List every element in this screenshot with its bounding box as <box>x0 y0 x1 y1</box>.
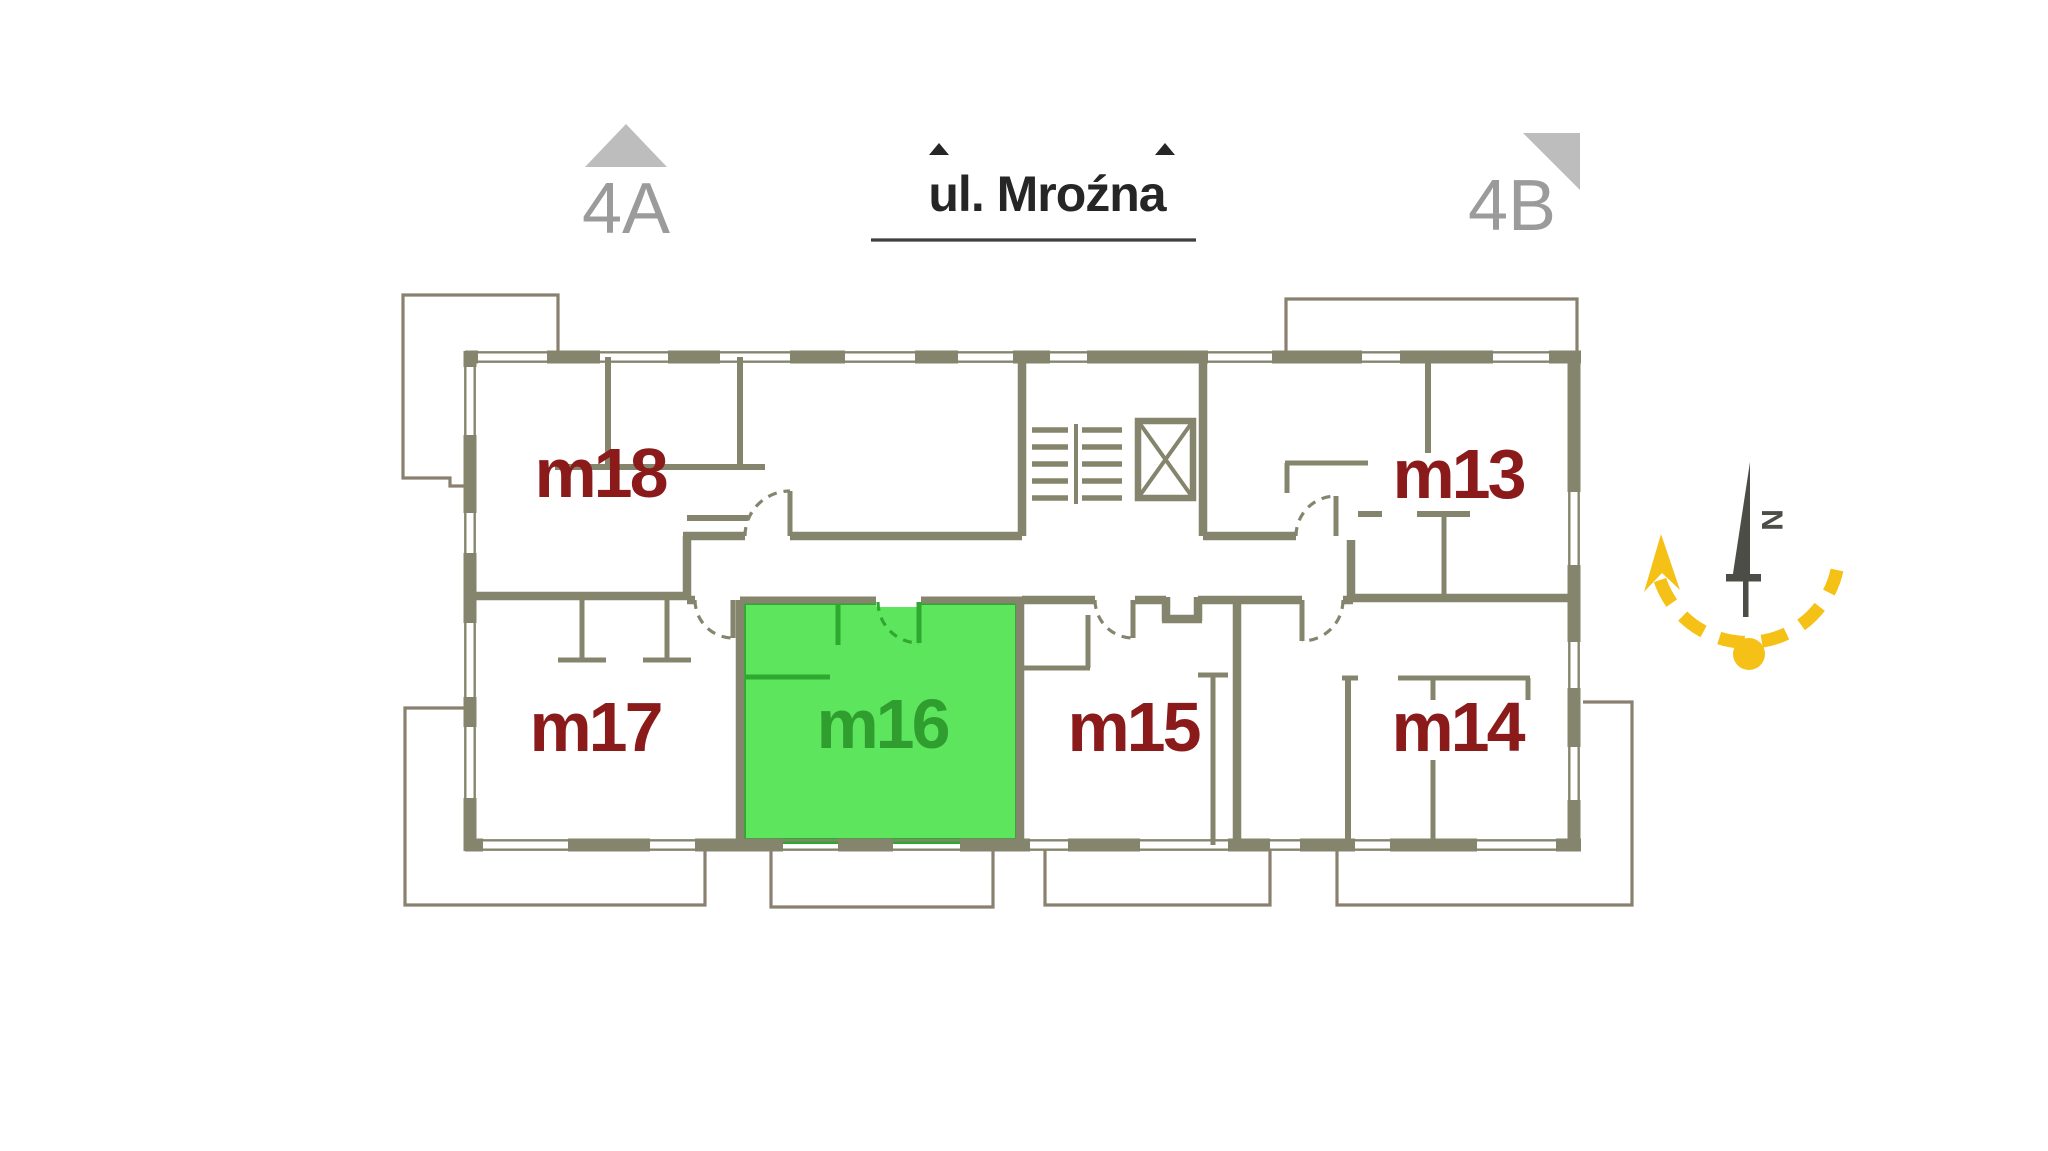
street-caret-left-icon <box>929 143 949 155</box>
street-name-label: ul. Mroźna <box>928 166 1167 222</box>
unit-label-m13[interactable]: m13 <box>1392 435 1524 513</box>
floor-plan-page: 4A ul. Mroźna 4B <box>0 0 2048 1151</box>
compass: N <box>1644 462 1837 670</box>
compass-needle-icon <box>1732 462 1750 580</box>
unit-label-m15[interactable]: m15 <box>1067 688 1199 766</box>
balcony-bottom-m15 <box>1045 849 1270 905</box>
building-marker-4b[interactable]: 4B <box>1468 133 1580 246</box>
compass-north-label: N <box>1755 509 1788 531</box>
balcony-top-right <box>1286 299 1577 351</box>
marker-4b-label: 4B <box>1468 166 1556 246</box>
unit-label-m18[interactable]: m18 <box>534 434 666 512</box>
elevator-icon <box>1138 421 1193 498</box>
marker-4a-triangle-icon <box>585 124 667 167</box>
building-marker-4a[interactable]: 4A <box>582 124 670 249</box>
balcony-bottom-m16 <box>771 849 993 907</box>
street-header: ul. Mroźna <box>871 143 1196 240</box>
unit-label-m16[interactable]: m16 <box>816 685 948 763</box>
marker-4a-label: 4A <box>582 169 670 249</box>
interior-walls <box>465 351 1575 845</box>
sun-dot-icon <box>1733 638 1765 670</box>
unit-label-m14[interactable]: m14 <box>1391 688 1525 766</box>
floor-plan-canvas: 4A ul. Mroźna 4B <box>0 0 2048 1151</box>
staircase-icon <box>1032 424 1122 504</box>
street-caret-right-icon <box>1155 143 1175 155</box>
unit-label-m17[interactable]: m17 <box>529 688 660 766</box>
